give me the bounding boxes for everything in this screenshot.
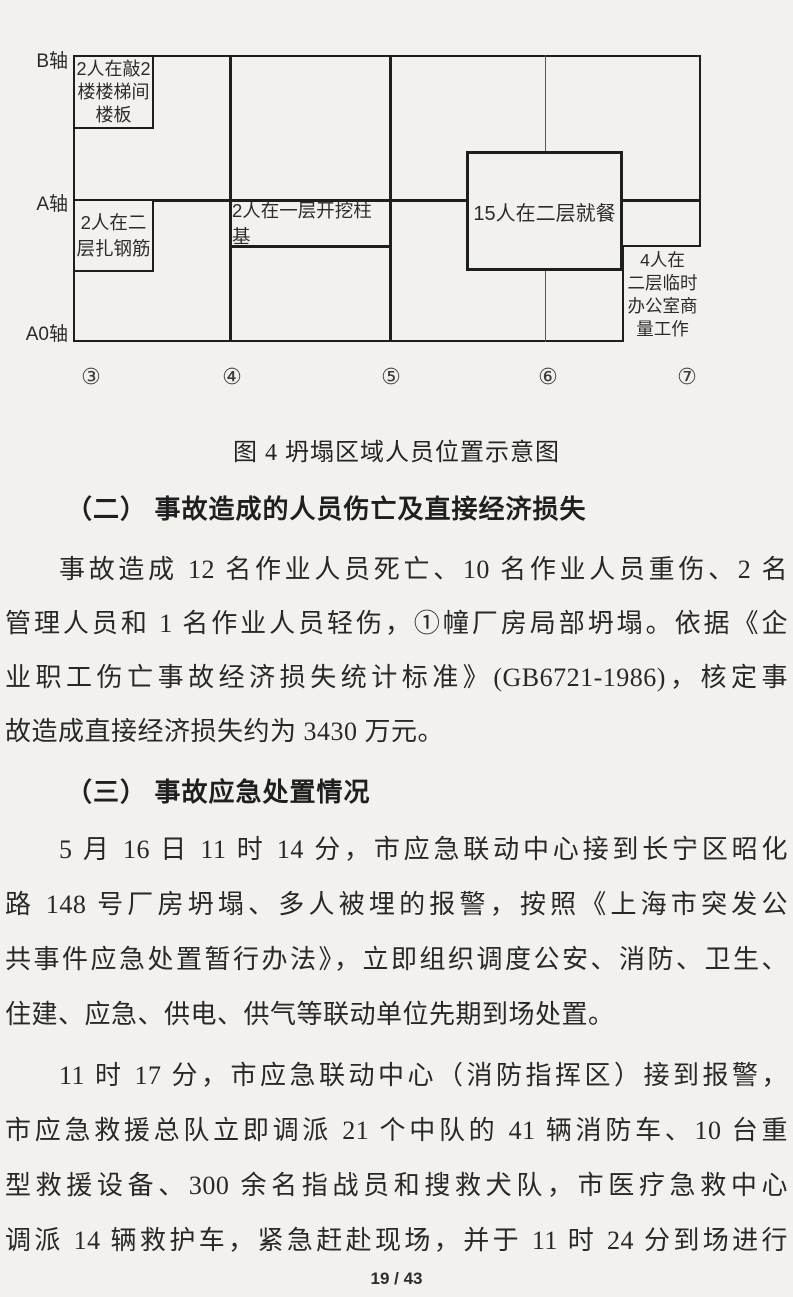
section-heading-emergency: （三） 事故应急处置情况 [66,772,371,809]
annotation-box-knock: 2人在敲2 楼楼梯间 楼板 [73,55,154,129]
paragraph-alarm: 5 月 16 日 11 时 14 分，市应急联动中心接到长宁区昭化 路 148 … [5,822,788,1042]
annotation-cell-dig: 2人在一层开挖柱基 [232,201,389,245]
section-heading-casualties: （二） 事故造成的人员伤亡及直接经济损失 [66,489,587,526]
body-line: 调派 14 辆救护车，紧急赶赴现场，并于 11 时 24 分到场进行 [5,1213,788,1268]
column-label-3: ③ [71,364,111,390]
body-line: 市应急救援总队立即调派 21 个中队的 41 辆消防车、10 台重 [5,1103,788,1158]
column-label-5: ⑤ [371,364,411,390]
column-label-6: ⑥ [528,364,568,390]
body-line: 型救援设备、300 余名指战员和搜救犬队，市医疗急救中心 [5,1158,788,1213]
figure-caption: 图 4 坍塌区域人员位置示意图 [0,432,793,467]
column-label-7: ⑦ [667,364,707,390]
column-label-4: ④ [212,364,252,390]
axis-label-a0: A0轴 [24,319,68,346]
annotation-box-dining: 15人在二层就餐 [466,151,623,271]
axis-label-b: B轴 [24,46,68,73]
paragraph-casualties: 事故造成 12 名作业人员死亡、10 名作业人员重伤、2 名 管理人员和 1 名… [5,543,788,759]
paragraph-rescue-dispatch: 11 时 17 分，市应急联动中心（消防指挥区）接到报警， 市应急救援总队立即调… [5,1048,788,1268]
body-line: 11 时 17 分，市应急联动中心（消防指挥区）接到报警， [5,1048,788,1103]
annotation-box-rebar: 2人在二 层扎钢筋 [73,199,154,272]
collapse-zone-diagram: B轴 A轴 A0轴 2人在敲2 楼楼梯间 楼板 2人在二 层扎钢筋 2人在一层开… [0,0,793,400]
body-line: 共事件应急处置暂行办法》，立即组织调度公安、消防、卫生、 [5,932,788,987]
axis-label-a: A轴 [24,189,68,216]
body-line: 事故造成 12 名作业人员死亡、10 名作业人员重伤、2 名 [5,543,788,597]
body-line: 业职工伤亡事故经济损失统计标准》(GB6721-1986)，核定事 [5,651,788,705]
body-line: 管理人员和 1 名作业人员轻伤，①幢厂房局部坍塌。依据《企 [5,597,788,651]
annotation-box-office: 4人在 二层临时 办公室商 量工作 [622,245,701,342]
body-line: 住建、应急、供电、供气等联动单位先期到场处置。 [5,987,788,1042]
body-line: 路 148 号厂房坍塌、多人被埋的报警，按照《上海市突发公 [5,877,788,932]
document-page: B轴 A轴 A0轴 2人在敲2 楼楼梯间 楼板 2人在二 层扎钢筋 2人在一层开… [0,0,793,1297]
body-line: 5 月 16 日 11 时 14 分，市应急联动中心接到长宁区昭化 [5,822,788,877]
body-line: 故造成直接经济损失约为 3430 万元。 [5,705,788,759]
page-number: 19 / 43 [0,1269,793,1289]
